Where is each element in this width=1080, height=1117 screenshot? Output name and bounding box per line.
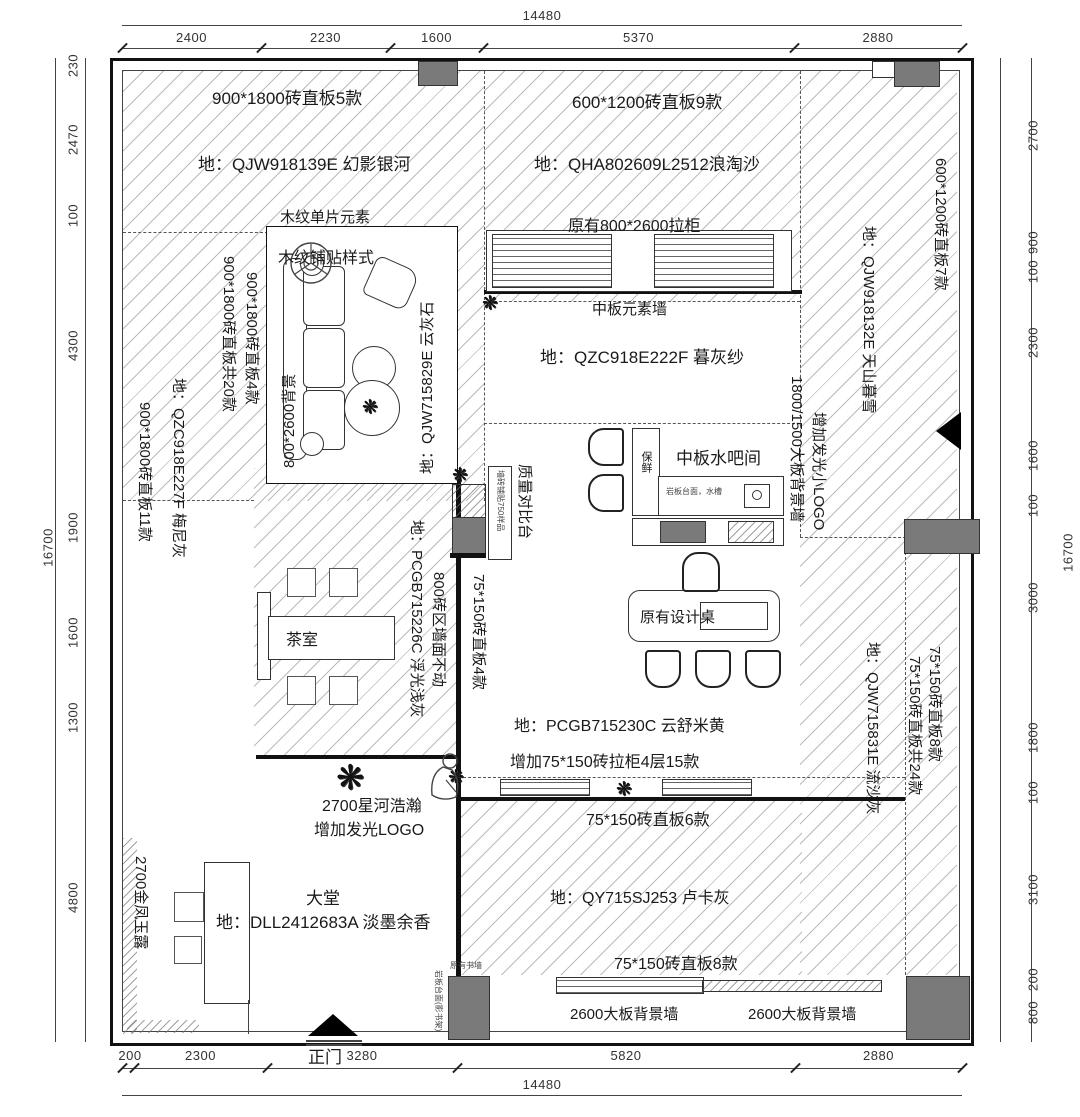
quality-sample-hatched [452, 484, 486, 519]
dim-line-bottom-segments [122, 1068, 962, 1069]
v-bgwall-label: 1800/1500大板背景墙 [787, 376, 808, 522]
dim-top-seg-2: 2230 [261, 30, 390, 45]
v-spec-label: 900*1800砖直板共20款 [219, 256, 240, 412]
dim-right-seg-5: 1600 [1026, 431, 1041, 481]
v-floor-label: 地：QJW715831E 流沙灰 [863, 642, 884, 815]
zone-spec-label: 75*150砖直板6款 [586, 806, 710, 830]
dim-left-seg-3: 100 [66, 191, 81, 241]
bg-wall-panel-left [556, 977, 704, 994]
counter-note: 岩板台面，水槽 [666, 486, 722, 497]
design-chair [695, 650, 731, 688]
dim-right-seg-12: 800 [1026, 988, 1041, 1038]
dim-bottom-seg-4: 5820 [457, 1048, 795, 1063]
dim-line-top-overall [122, 25, 962, 26]
dim-left-seg-6: 1600 [66, 608, 81, 658]
zone-spec-label: 75*150砖直板8款 [614, 950, 738, 974]
quality-sample-gray [452, 517, 486, 555]
floor-plan-canvas: 14480 2400 2230 1600 5370 2880 200 2300 … [0, 0, 1080, 1117]
reception-desk [204, 862, 250, 1004]
reception-chair [174, 936, 202, 964]
dim-left-overall: 16700 [41, 518, 56, 578]
v-floor-label: 地：QJW918132E 天山暮雪 [859, 226, 880, 414]
add-logo-label: 增加发光LOGO [314, 816, 424, 840]
design-table-label: 原有设计桌 [640, 606, 715, 627]
dim-line-right-segments [1000, 58, 1001, 1042]
dim-top-seg-5: 2880 [794, 30, 962, 45]
tea-chair [329, 568, 358, 597]
dim-line-bottom-overall [122, 1095, 962, 1096]
bg-wall-label: 2600大板背景墙 [570, 1003, 678, 1024]
dim-bottom-seg-2: 2300 [134, 1048, 267, 1063]
dim-left-seg-8: 4800 [66, 873, 81, 923]
dim-right-seg-7: 3000 [1026, 573, 1041, 623]
v-floor-label: 地：QJW715829E 云灰石 [416, 301, 437, 474]
dim-top-overall: 14480 [122, 8, 962, 23]
tea-chair [329, 676, 358, 705]
lobby-label: 大堂 [306, 884, 340, 909]
plant-icon: ❋ [482, 292, 498, 315]
quality-table-edge [450, 553, 486, 558]
tea-room-label: 茶室 [286, 626, 318, 650]
sofa-pillow [300, 432, 324, 456]
zone-floor-label: 地：QJW918139E 幻影银河 [198, 150, 411, 175]
v-floor-label: 地：PCGB715226C 浮光浅灰 [407, 520, 428, 718]
wall-niche [872, 61, 896, 78]
v-add-logo-label: 增加发光小LOGO [809, 412, 830, 530]
lobby-floor-label: 地：DLL2412683A 淡墨余香 [216, 908, 431, 933]
plant-icon: ❋ [362, 396, 378, 419]
v-floor-label: 地：QZC918E227F 梅尼灰 [169, 378, 190, 558]
display-rack [662, 779, 752, 796]
dim-left-seg-5: 1900 [66, 503, 81, 553]
bookwall-note: 原有书墙 [450, 960, 482, 971]
entrance-label: 正门 [308, 1043, 342, 1068]
quality-table-label: 质量对比台 [515, 464, 536, 539]
entrance-threshold [306, 1040, 362, 1042]
design-chair [645, 650, 681, 688]
column-right-mid [904, 519, 980, 554]
wood-element-label: 木纹单片元素 [280, 206, 370, 227]
dim-right-seg-1: 2700 [1026, 111, 1041, 161]
bar-chair [588, 474, 624, 512]
zone-floor-label: 地：QHA802609L2512浪淘沙 [534, 150, 760, 175]
zone-spec-label: 900*1800砖直板5款 [212, 84, 362, 109]
entrance-threshold [306, 1044, 362, 1046]
dim-top-seg-1: 2400 [122, 30, 261, 45]
fridge: 保鲜 [632, 428, 660, 516]
design-chair-top [682, 552, 720, 592]
v-gold-label: 2700金凤玉露 [131, 856, 152, 949]
dim-left-seg-7: 1300 [66, 693, 81, 743]
entrance-arrow-icon [308, 1014, 358, 1036]
dim-bottom-seg-3: 3280 [267, 1048, 457, 1063]
dim-left-seg-2: 2470 [66, 115, 81, 165]
zone-spec-label: 600*1200砖直板9款 [572, 88, 722, 113]
dashed-boundary [484, 423, 800, 424]
hatch-wall-finish-bottom [127, 1020, 199, 1033]
dim-right-seg-9: 100 [1026, 768, 1041, 818]
zone-floor-label: 地：QZC918E222F 暮灰纱 [540, 343, 744, 368]
zone-floor-label: 地：PCGB715230C 云舒米黄 [514, 712, 725, 736]
column-bottom-left [448, 976, 490, 1040]
dashed-boundary [458, 777, 905, 778]
plant-icon: ❋ [452, 464, 468, 487]
bottom-display-wall [458, 797, 905, 801]
v-rock-shelf-note: 岩板台面(影书架) [433, 970, 444, 1031]
display-rack [500, 779, 590, 796]
dim-line-top-segments [122, 48, 962, 49]
column [418, 61, 458, 86]
wood-paste-label: 木纹铺贴样式 [278, 244, 374, 268]
dim-left-seg-4: 4300 [66, 321, 81, 371]
cabinet-shelves-left [492, 234, 612, 288]
dim-right-seg-3: 100 [1026, 247, 1041, 297]
zone-add-label: 增加75*150砖拉柜4层15款 [510, 748, 699, 772]
door-marker-right-icon [936, 412, 961, 450]
dim-right-seg-10: 3100 [1026, 865, 1041, 915]
faucet-icon [752, 490, 762, 500]
cabinet-shelves-right [654, 234, 774, 288]
waterbar-label: 中板水吧间 [676, 444, 761, 469]
reception-chair [174, 892, 204, 922]
v-spec-label: 75*150砖直板4款 [469, 574, 490, 690]
column-bottom-right [906, 976, 970, 1040]
dim-top-seg-3: 1600 [390, 30, 483, 45]
bar-chair [588, 428, 624, 466]
fridge-label: 保鲜 [638, 451, 654, 473]
quality-note-label: 墙砖铺贴750样品 [495, 470, 506, 531]
midwall-label: 中板元素墙 [592, 298, 667, 319]
plant-icon: ❋ [616, 778, 632, 801]
v-zone-label: 800砖区墙面不动 [429, 572, 450, 687]
zone-floor-label: 地：QY715SJ253 卢卡灰 [550, 884, 730, 908]
dashed-boundary [123, 232, 268, 233]
v-spec-label: 75*150砖直板8款 [925, 646, 946, 762]
bg-wall-panel-right [702, 980, 882, 992]
dim-left-seg-1: 230 [66, 41, 81, 91]
cabinet-block-hatched [728, 521, 774, 543]
tea-chair [287, 568, 316, 597]
dim-right-overall: 16700 [1061, 523, 1076, 583]
dashed-boundary [484, 71, 485, 501]
dim-right-seg-4: 2300 [1026, 318, 1041, 368]
logo-tile-label: 2700星河浩瀚 [322, 792, 422, 816]
v-sofa-bg-label: 800*2600背景 [278, 374, 299, 468]
tea-chair [287, 676, 316, 705]
dim-right-seg-8: 1800 [1026, 713, 1041, 763]
cabinet-label: 原有800*2600拉柜 [568, 212, 701, 236]
dim-right-seg-6: 100 [1026, 481, 1041, 531]
sofa-cushion [303, 328, 345, 388]
column [894, 61, 940, 87]
cabinet-block [660, 521, 706, 543]
dim-top-seg-4: 5370 [483, 30, 794, 45]
design-chair [745, 650, 781, 688]
dim-bottom-seg-5: 2880 [795, 1048, 962, 1063]
v-spec-label: 75*150砖直板共24款 [905, 656, 926, 795]
dim-line-left-segments [85, 58, 86, 1042]
bg-wall-label: 2600大板背景墙 [748, 1003, 856, 1024]
dim-bottom-overall: 14480 [122, 1077, 962, 1092]
v-spec-label: 900*1800砖直板4款 [242, 272, 263, 405]
v-spec-label: 900*1800砖直板11款 [135, 402, 156, 542]
dashed-boundary [800, 537, 906, 538]
reception-desk-return [248, 1000, 249, 1034]
v-spec-label: 600*1200砖直板7款 [931, 158, 952, 291]
